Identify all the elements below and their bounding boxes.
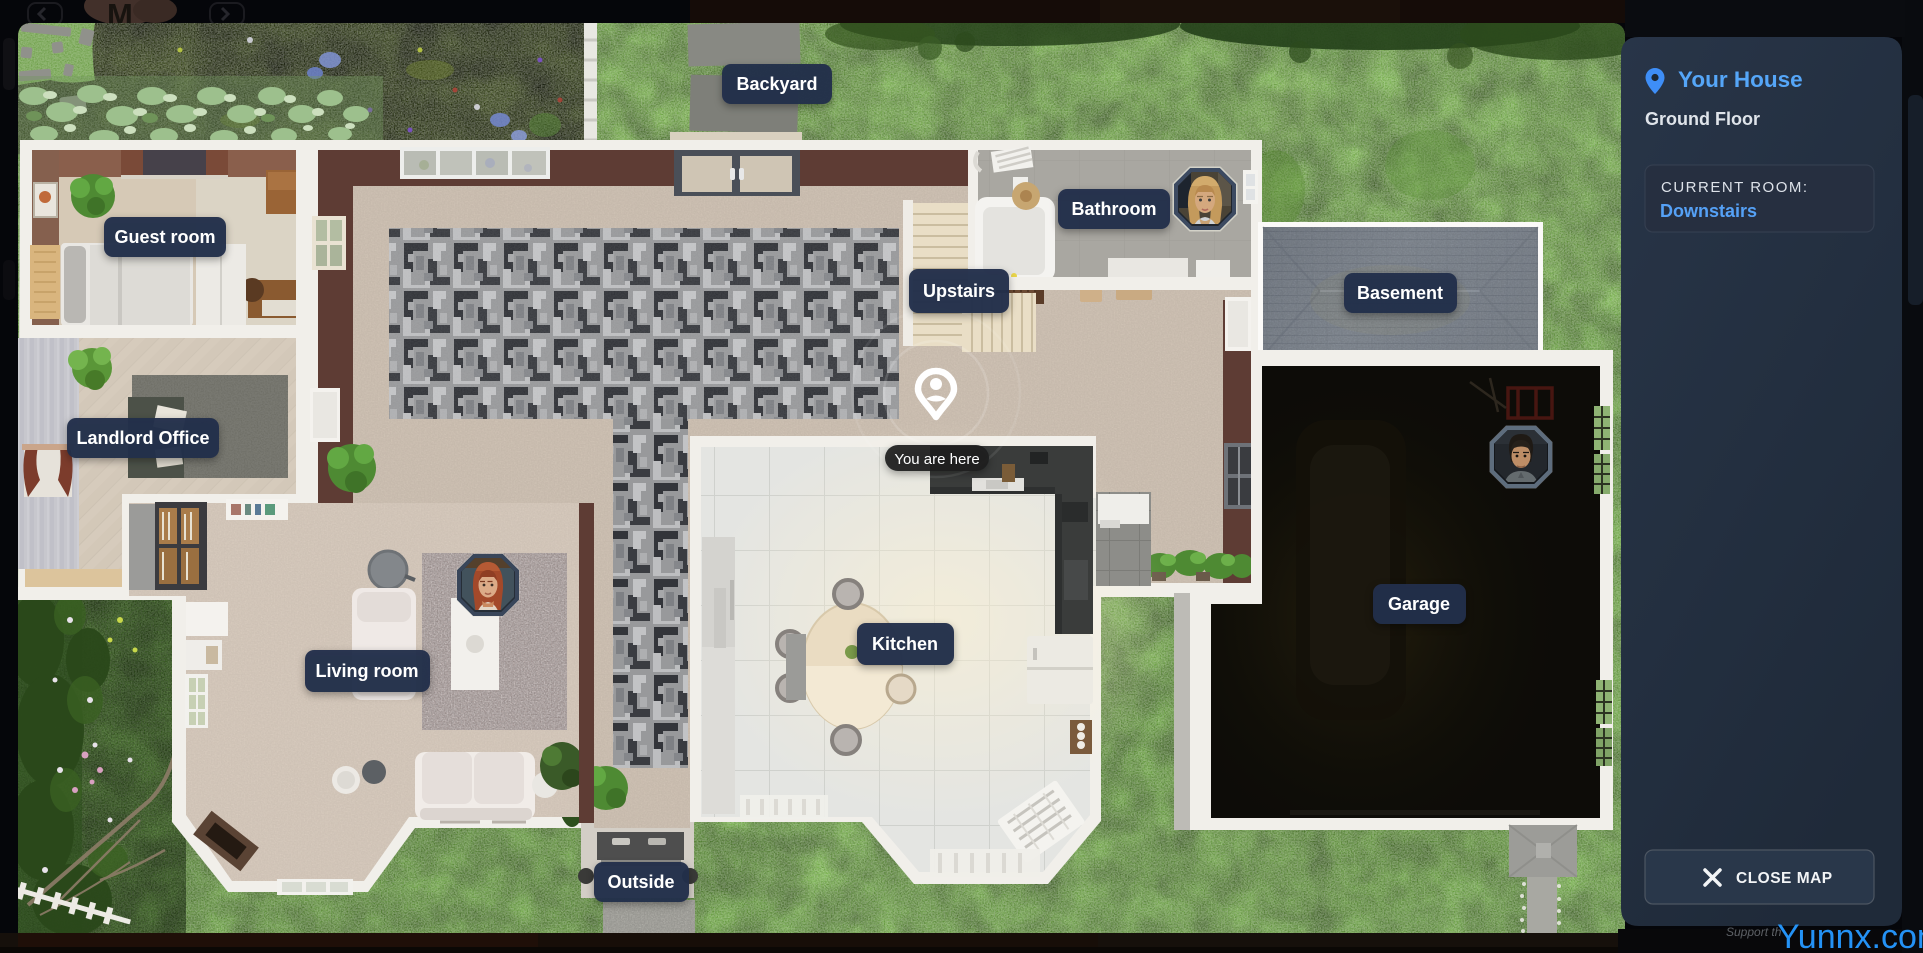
svg-text:Yunnx.com: Yunnx.com bbox=[1777, 918, 1923, 953]
svg-text:Living room: Living room bbox=[316, 661, 419, 681]
svg-text:CLOSE MAP: CLOSE MAP bbox=[1736, 870, 1833, 887]
svg-text:Basement: Basement bbox=[1357, 283, 1443, 303]
svg-text:Backyard: Backyard bbox=[736, 74, 817, 94]
svg-text:Your House: Your House bbox=[1678, 67, 1803, 92]
svg-text:Bathroom: Bathroom bbox=[1072, 199, 1157, 219]
svg-text:Outside: Outside bbox=[607, 872, 674, 892]
svg-text:Upstairs: Upstairs bbox=[923, 281, 995, 301]
svg-text:Kitchen: Kitchen bbox=[872, 634, 938, 654]
svg-text:Guest room: Guest room bbox=[114, 227, 215, 247]
svg-text:You are here: You are here bbox=[894, 451, 979, 468]
svg-text:Support th: Support th bbox=[1726, 925, 1782, 939]
svg-text:Garage: Garage bbox=[1388, 594, 1450, 614]
svg-text:Ground Floor: Ground Floor bbox=[1645, 109, 1760, 129]
svg-text:CURRENT ROOM:: CURRENT ROOM: bbox=[1661, 179, 1809, 196]
svg-text:Downstairs: Downstairs bbox=[1660, 201, 1757, 221]
svg-text:Landlord Office: Landlord Office bbox=[76, 428, 209, 448]
